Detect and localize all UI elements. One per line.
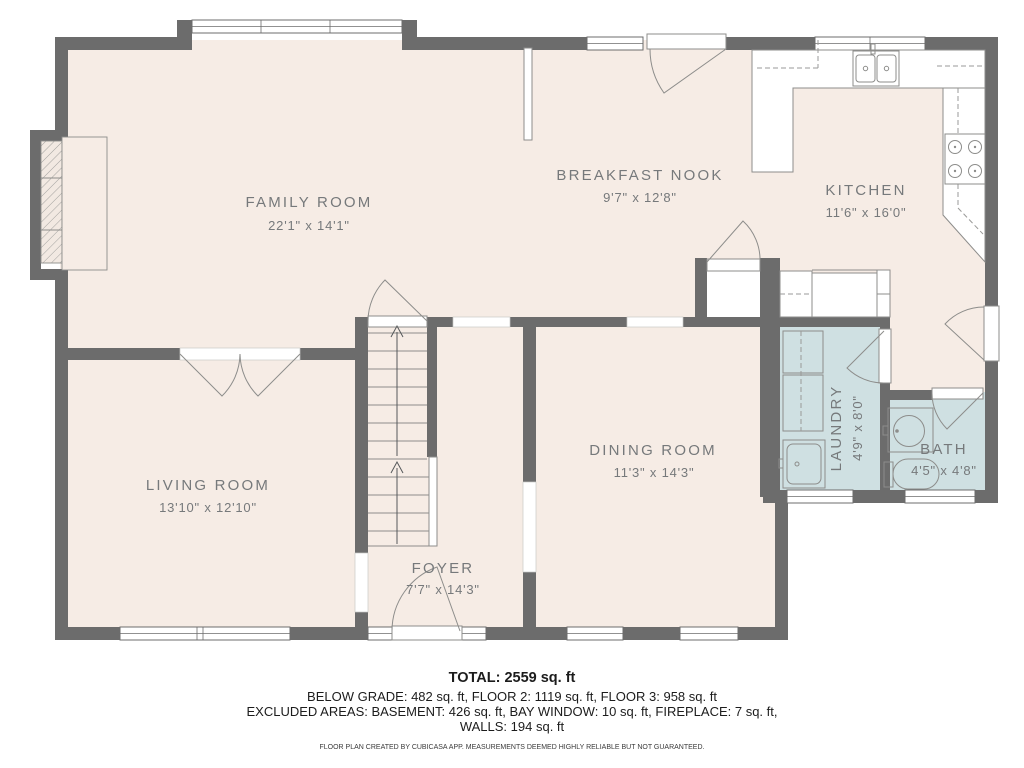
- window-sidelight-left: [368, 627, 392, 640]
- excluded-areas-text: EXCLUDED AREAS: BASEMENT: 426 sq. ft, BA…: [246, 704, 777, 719]
- wall-segment: [355, 317, 368, 553]
- stair-railing: [429, 457, 437, 546]
- room-label-dining-room: DINING ROOM: [589, 442, 717, 459]
- floor-areas-text: BELOW GRADE: 482 sq. ft, FLOOR 2: 1119 s…: [307, 689, 717, 704]
- opening-foyer-dining: [523, 482, 536, 572]
- room-label-bath: BATH: [920, 441, 968, 458]
- wall-segment: [55, 627, 120, 640]
- wall-segment: [880, 390, 932, 400]
- walls-area-text: WALLS: 194 sq. ft: [460, 719, 565, 734]
- wall-segment: [760, 258, 780, 497]
- wall-segment: [623, 627, 680, 640]
- refrigerator-icon: [780, 270, 890, 317]
- window-dining-2: [680, 627, 738, 640]
- wall-segment: [177, 20, 192, 50]
- room-dims-laundry: 4'9" x 8'0": [850, 395, 865, 461]
- room-label-laundry: LAUNDRY: [828, 385, 845, 472]
- disclaimer-text: FLOOR PLAN CREATED BY CUBICASA APP. MEAS…: [320, 744, 705, 751]
- wall-segment: [55, 280, 68, 637]
- wall-segment: [523, 327, 536, 482]
- opening-foyer-living: [355, 553, 368, 612]
- room-dims-kitchen: 11'6" x 16'0": [826, 205, 907, 220]
- fireplace-firebox-icon: [41, 141, 62, 263]
- window-laundry: [787, 490, 853, 503]
- wall-segment: [523, 572, 536, 637]
- wall-segment: [853, 490, 905, 503]
- wall-segment: [985, 37, 998, 307]
- room-dims-dining-room: 11'3" x 14'3": [614, 465, 695, 480]
- room-dims-foyer: 7'7" x 14'3": [406, 582, 480, 597]
- wall-segment: [55, 37, 68, 130]
- wall-segment: [30, 130, 41, 280]
- window-nook: [587, 37, 643, 50]
- wall-segment: [427, 327, 437, 457]
- room-dims-breakfast-nook: 9'7" x 12'8": [603, 190, 677, 205]
- opening-foyer-nook: [453, 317, 510, 327]
- room-label-family-room: FAMILY ROOM: [246, 194, 373, 211]
- opening-nook-dining: [627, 317, 683, 327]
- wall-segment: [985, 360, 998, 503]
- wall-segment: [30, 269, 68, 280]
- wall-segment: [775, 497, 788, 637]
- room-dims-family-room: 22'1" x 14'1": [268, 218, 350, 233]
- floor-plan-page: FAMILY ROOM 22'1" x 14'1" BREAKFAST NOOK…: [0, 0, 1024, 768]
- fireplace-hearth: [62, 137, 107, 270]
- partition-wall: [524, 48, 532, 140]
- bay-window: [192, 20, 402, 33]
- closet-floor: [706, 270, 761, 318]
- stove-icon: [945, 134, 985, 184]
- wall-segment: [760, 317, 890, 327]
- room-label-living-room: LIVING ROOM: [146, 477, 270, 494]
- wall-segment: [355, 612, 368, 637]
- room-label-foyer: FOYER: [412, 560, 475, 577]
- floor-plan-drawing: FAMILY ROOM 22'1" x 14'1" BREAKFAST NOOK…: [0, 0, 1024, 768]
- wall-segment: [427, 317, 453, 327]
- wall-segment: [726, 37, 815, 50]
- window-sidelight-right: [462, 627, 486, 640]
- wall-segment: [413, 37, 587, 50]
- window-kitchen: [815, 37, 925, 50]
- fireplace: [30, 130, 107, 280]
- wall-segment: [695, 258, 707, 318]
- wall-segment: [510, 317, 627, 327]
- window-bath: [905, 490, 975, 503]
- wall-segment: [55, 348, 180, 360]
- window-dining-1: [567, 627, 623, 640]
- total-area-text: TOTAL: 2559 sq. ft: [449, 670, 576, 686]
- window-living: [120, 627, 290, 640]
- room-label-breakfast-nook: BREAKFAST NOOK: [556, 167, 723, 184]
- room-dims-bath: 4'5" x 4'8": [911, 463, 977, 478]
- wall-segment: [55, 37, 178, 50]
- wall-segment: [975, 490, 998, 503]
- footer: TOTAL: 2559 sq. ft BELOW GRADE: 482 sq. …: [246, 670, 777, 751]
- room-label-kitchen: KITCHEN: [825, 182, 906, 199]
- room-dims-living-room: 13'10" x 12'10": [159, 500, 257, 515]
